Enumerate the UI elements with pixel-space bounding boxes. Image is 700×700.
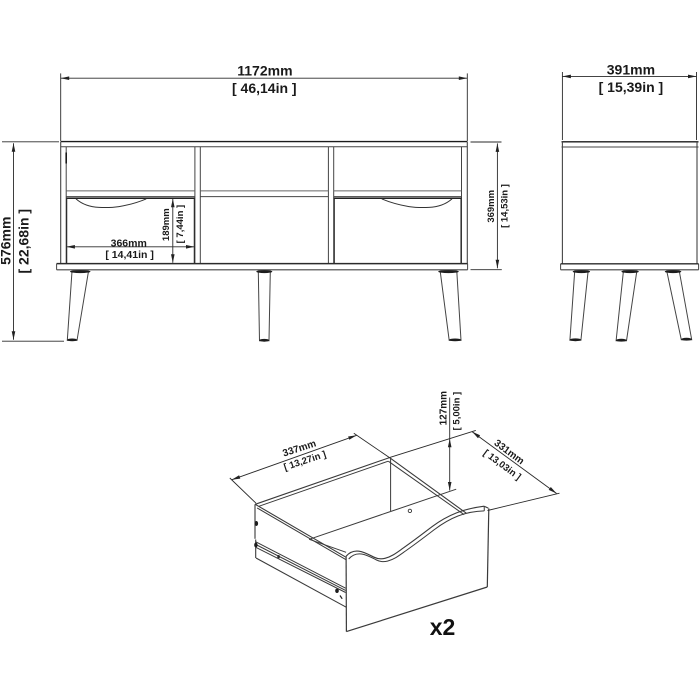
svg-text:127mm: 127mm xyxy=(439,391,450,426)
svg-text:366mm: 366mm xyxy=(111,237,147,249)
svg-text:[ 14,41in ]: [ 14,41in ] xyxy=(105,249,153,261)
svg-text:369mm: 369mm xyxy=(486,190,497,223)
svg-text:x2: x2 xyxy=(430,614,456,640)
svg-text:[ 5,00in ]: [ 5,00in ] xyxy=(451,392,462,431)
svg-text:576mm: 576mm xyxy=(0,217,13,265)
svg-text:189mm: 189mm xyxy=(161,208,172,241)
svg-text:391mm: 391mm xyxy=(607,61,655,77)
svg-text:[ 15,39in ]: [ 15,39in ] xyxy=(599,79,664,95)
svg-text:[ 14,53in ]: [ 14,53in ] xyxy=(500,184,511,228)
svg-text:[ 46,14in ]: [ 46,14in ] xyxy=(232,80,297,96)
svg-text:1172mm: 1172mm xyxy=(237,63,292,79)
svg-text:[ 22,68in ]: [ 22,68in ] xyxy=(15,209,31,274)
svg-text:[ 7,44in ]: [ 7,44in ] xyxy=(175,205,186,244)
